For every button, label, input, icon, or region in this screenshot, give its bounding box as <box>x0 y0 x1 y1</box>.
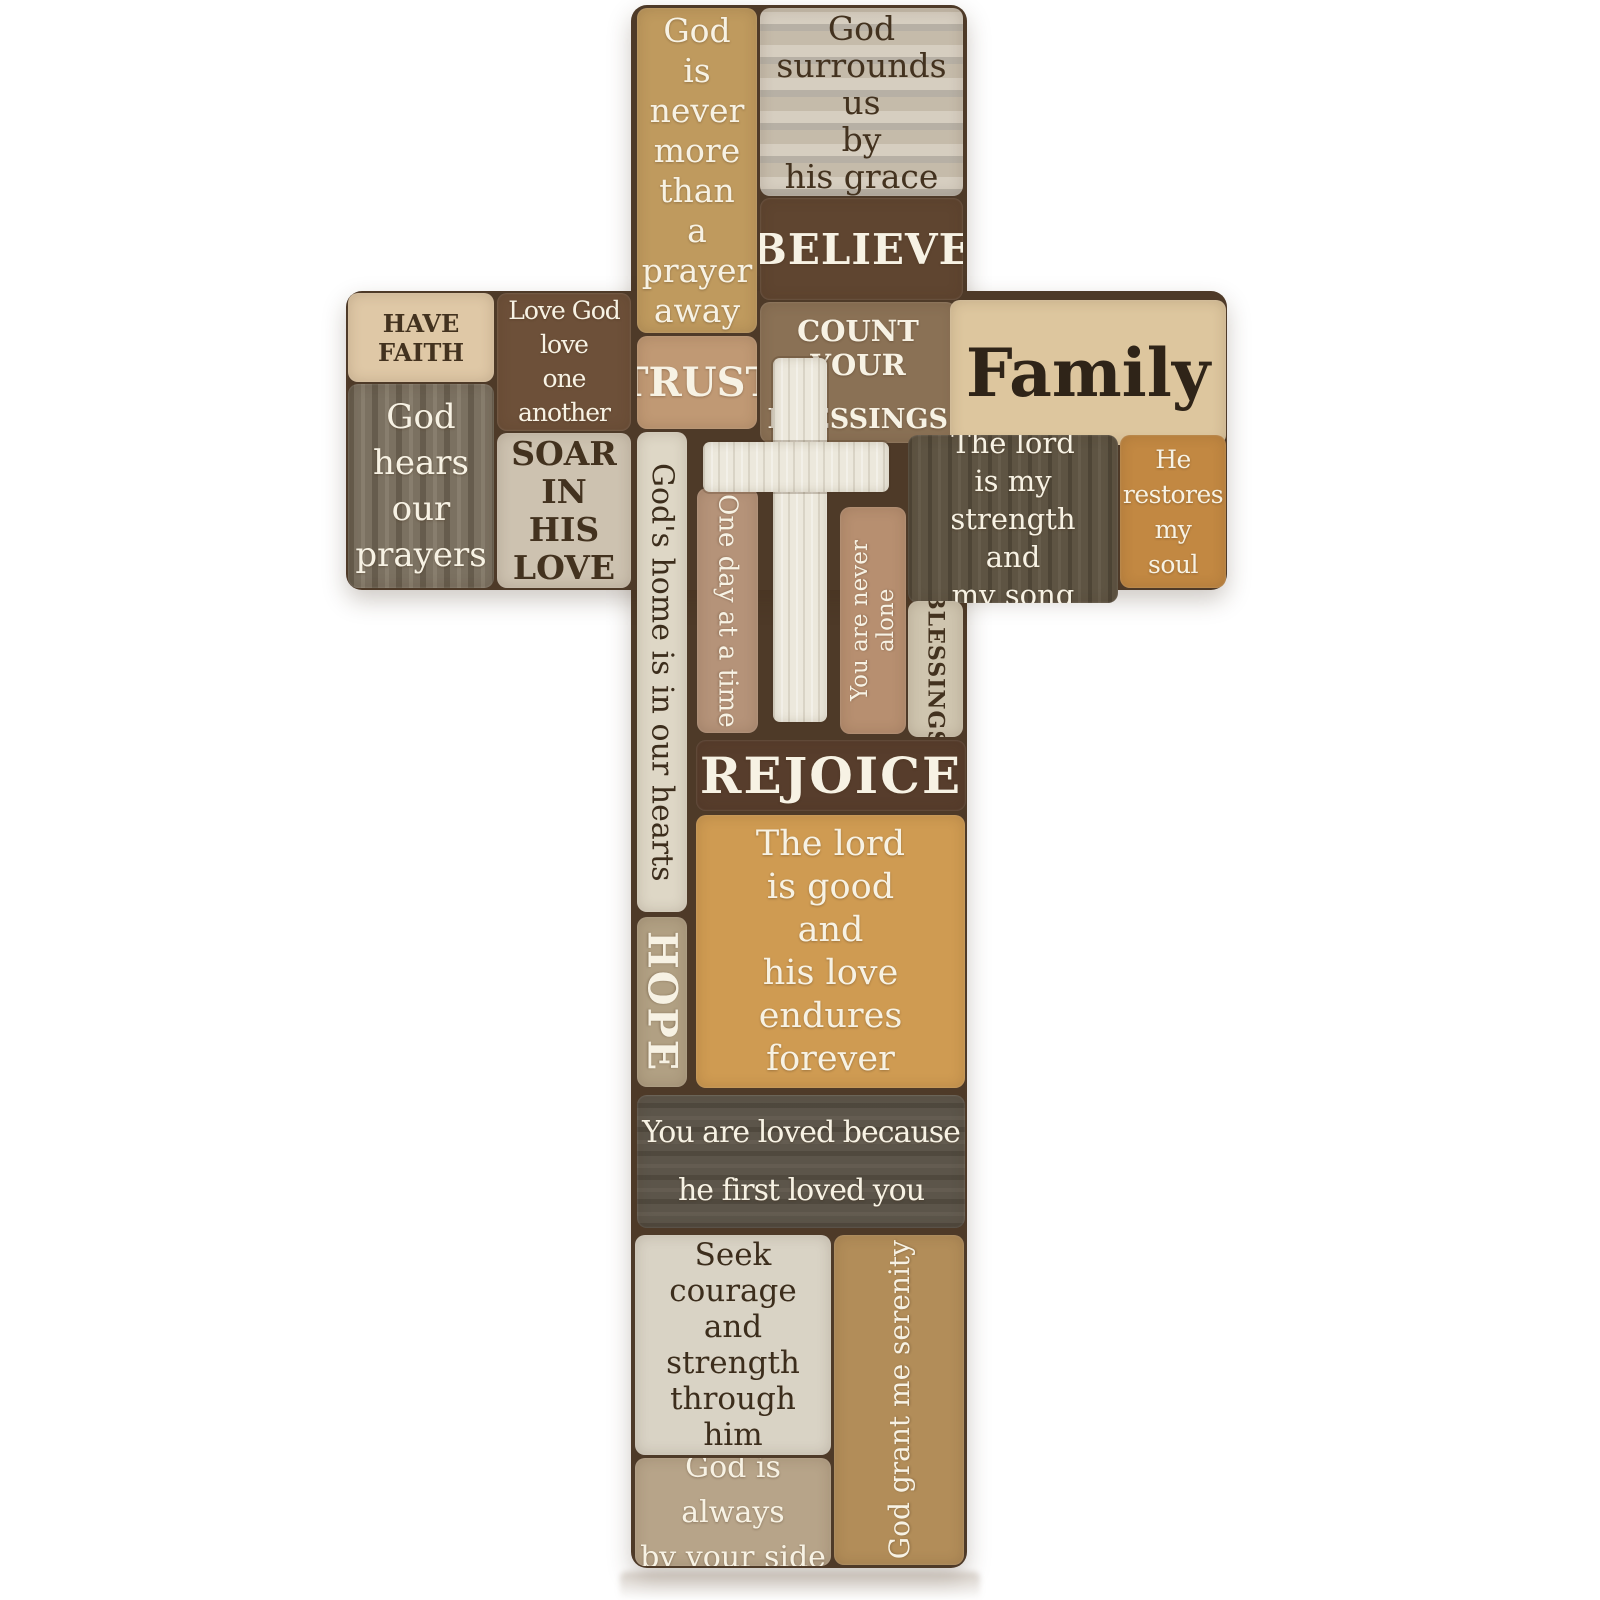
block-god-hears-our-prayers: God hears our prayers <box>348 384 494 588</box>
block-text: HAVE FAITH <box>348 309 494 367</box>
block-text: One day at a time <box>713 494 743 728</box>
block-text: TRUST <box>637 359 757 406</box>
block-god-surrounds: God surrounds us by his grace <box>760 8 963 196</box>
block-gods-home-is-in-our-hearts: God's home is in our hearts <box>637 432 687 912</box>
block-text: BELIEVE <box>760 225 963 274</box>
block-text: God's home is in our hearts <box>645 463 680 882</box>
block-love-god-love-one-another: Love God love one another <box>497 293 631 431</box>
block-text: God hears our prayers <box>355 394 486 578</box>
block-text: God is always by your side <box>635 1458 831 1566</box>
block-text: REJOICE <box>700 746 962 805</box>
block-text: You are never alone <box>847 507 899 734</box>
block-text: You are loved because he first loved you <box>642 1104 960 1220</box>
block-text: Seek courage and strength through him <box>666 1237 800 1453</box>
block-text: HOPE <box>639 931 686 1072</box>
block-family: Family <box>950 300 1226 445</box>
block-god-is-always-by-your-side: God is always by your side <box>635 1458 831 1566</box>
product-photo-wall-cross: God is never more than a prayer away God… <box>0 0 1600 1600</box>
block-trust: TRUST <box>637 336 757 429</box>
block-lord-is-my-strength: The lord is my strength and my song <box>908 435 1118 603</box>
block-he-restores-my-soul: He restores my soul <box>1120 435 1226 588</box>
block-text: God surrounds us by his grace <box>776 10 946 195</box>
block-text: God grant me serenity <box>883 1240 916 1559</box>
block-one-day-at-a-time: One day at a time <box>697 488 758 733</box>
block-seek-courage: Seek courage and strength through him <box>635 1235 831 1455</box>
block-you-are-loved: You are loved because he first loved you <box>637 1095 965 1228</box>
block-text: Love God love one another <box>497 294 631 430</box>
block-soar-in-his-love: SOAR IN HIS LOVE <box>497 433 631 588</box>
white-cross-icon <box>703 442 889 492</box>
block-text: Family <box>966 334 1210 412</box>
block-text: God is never more than a prayer away <box>642 11 753 331</box>
block-text: SOAR IN HIS LOVE <box>511 435 617 587</box>
block-rejoice: REJOICE <box>696 740 966 811</box>
block-text: BLESSINGS <box>923 601 949 737</box>
block-you-are-never-alone: You are never alone <box>840 507 906 734</box>
block-god-is-never: God is never more than a prayer away <box>637 8 757 333</box>
floor-reflection <box>620 1572 980 1600</box>
block-hope: HOPE <box>637 917 687 1087</box>
block-god-grant-me-serenity: God grant me serenity <box>834 1235 964 1565</box>
block-lord-is-good: The lord is good and his love endures fo… <box>696 815 965 1088</box>
block-text: The lord is good and his love endures fo… <box>756 823 905 1081</box>
block-believe: BELIEVE <box>760 198 963 300</box>
block-text: He restores my soul <box>1123 442 1223 582</box>
white-cross-icon <box>773 358 827 722</box>
block-have-faith: HAVE FAITH <box>348 293 494 382</box>
block-blessings-vertical: BLESSINGS <box>908 601 963 737</box>
block-text: The lord is my strength and my song <box>908 435 1118 603</box>
